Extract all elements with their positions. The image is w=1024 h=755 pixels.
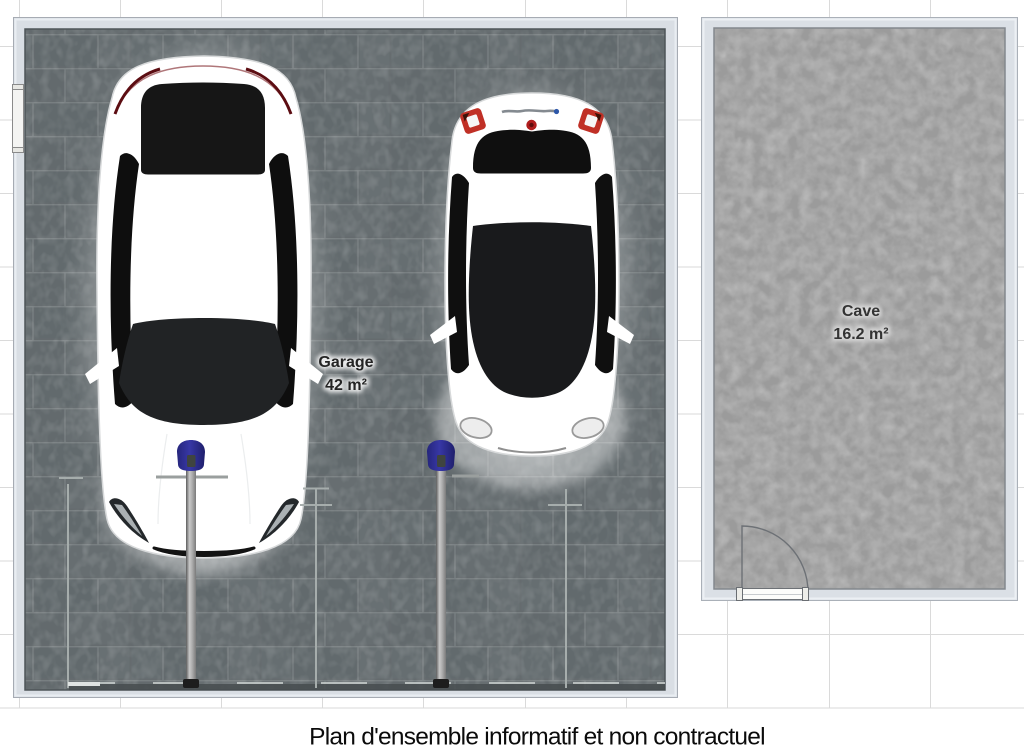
svg-text:Cave: Cave [842,303,880,320]
svg-text:16.2 m²: 16.2 m² [833,326,888,343]
svg-text:Garage: Garage [318,354,373,371]
svg-text:Plan d'ensemble informatif et: Plan d'ensemble informatif et non contra… [309,724,765,751]
svg-text:42 m²: 42 m² [325,377,367,394]
